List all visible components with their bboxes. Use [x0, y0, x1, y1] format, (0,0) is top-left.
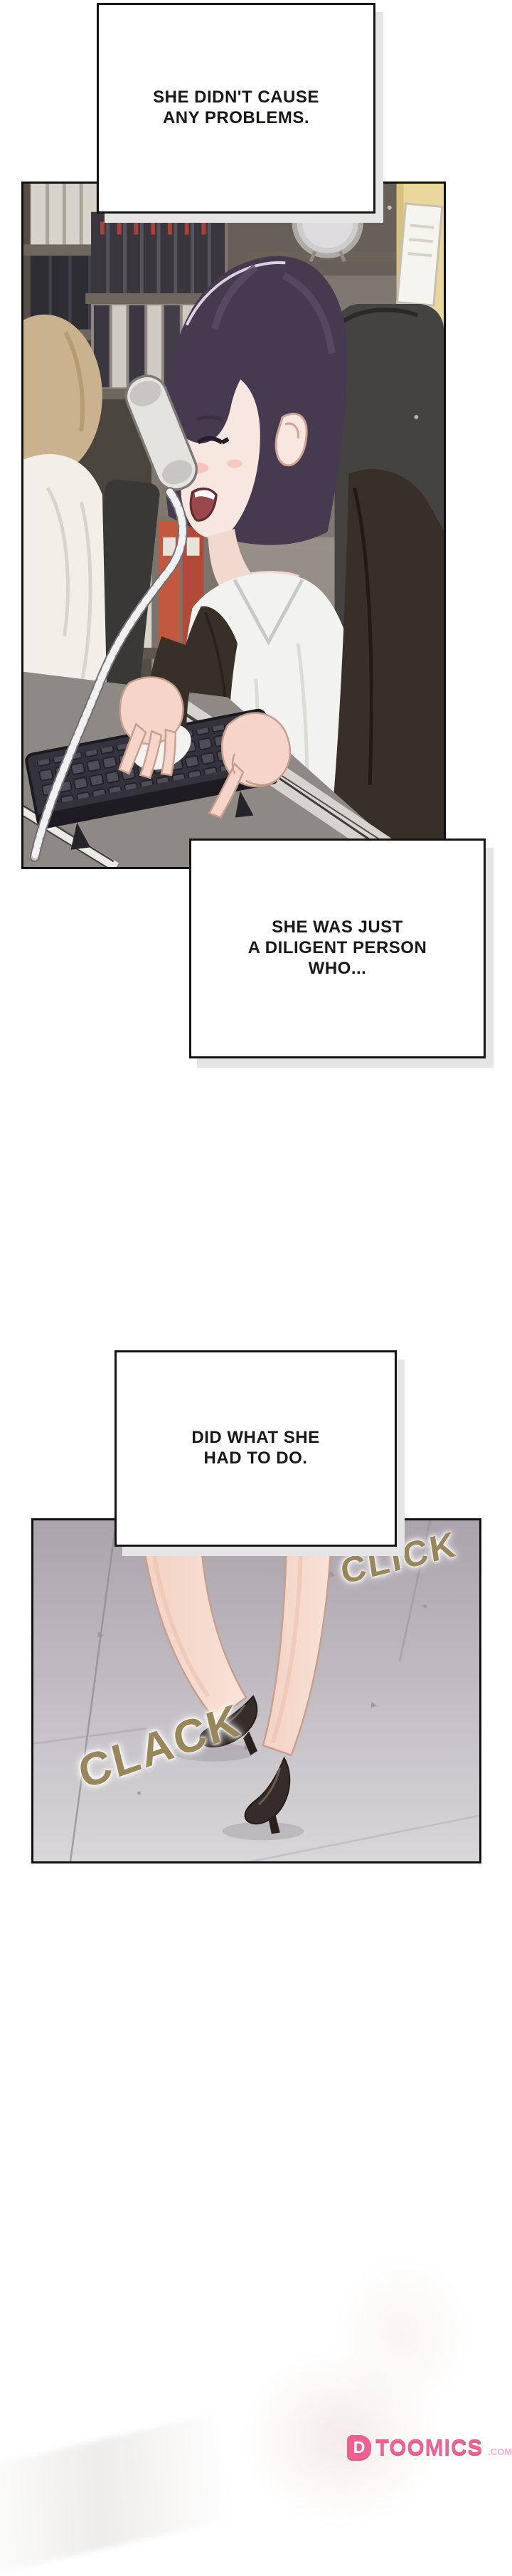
shoe-shadow — [222, 1822, 304, 1841]
binders-row-top — [91, 212, 225, 295]
certificate-frame — [398, 204, 442, 305]
faint-background-art — [0, 2414, 236, 2575]
faint-background-art — [334, 2256, 469, 2413]
narration-line: SHE WAS JUST — [272, 918, 403, 938]
narration-line: WHO... — [309, 959, 367, 979]
narration-box-3: DID WHAT SHE HAD TO DO. — [114, 1350, 397, 1547]
toomics-suffix-text: .COM — [488, 2446, 512, 2457]
comic-page: { "speech_boxes": [ { "lines": ["SHE DID… — [0, 0, 512, 2538]
toomics-brand-text: TOOMICS — [375, 2434, 483, 2460]
narration-line: ANY PROBLEMS. — [163, 108, 309, 129]
walking-heels-panel: CLICK CLACK — [31, 1518, 481, 1863]
narration-box-2: SHE WAS JUST A DILIGENT PERSON WHO... — [189, 838, 486, 1058]
narration-line: HAD TO DO. — [204, 1449, 308, 1469]
narration-line: A DILIGENT PERSON — [248, 938, 427, 959]
narration-box-1: SHE DIDN'T CAUSE ANY PROBLEMS. — [97, 3, 375, 214]
toomics-logo-icon: D — [347, 2435, 371, 2459]
toomics-icon-letter: D — [353, 2438, 366, 2457]
narration-line: DID WHAT SHE — [191, 1428, 319, 1449]
office-panel — [21, 182, 446, 869]
toomics-watermark: D TOOMICS .COM — [347, 2434, 512, 2460]
office-scene-illustration — [23, 184, 444, 867]
narration-line: SHE DIDN'T CAUSE — [153, 88, 319, 108]
